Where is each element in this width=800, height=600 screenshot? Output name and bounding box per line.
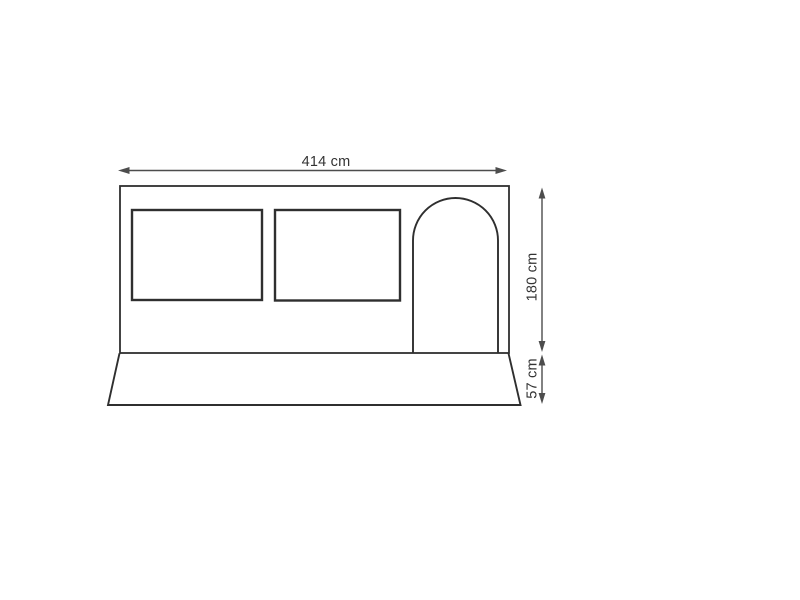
arched-door	[413, 198, 498, 353]
product-diagram-canvas: 414 cm 180 cm 57 cm	[0, 0, 800, 600]
arrow-left-icon	[118, 167, 130, 174]
skirt-dimension-label: 57 cm	[525, 358, 541, 399]
height-dimension-label: 180 cm	[525, 253, 541, 302]
window-right	[275, 210, 400, 301]
panel-shapes	[108, 186, 521, 405]
width-dimension: 414 cm	[118, 154, 507, 174]
arrow-up-icon	[539, 188, 546, 199]
width-dimension-label: 414 cm	[302, 154, 351, 170]
skirt-dimension: 57 cm	[525, 355, 546, 405]
ground-skirt	[108, 353, 521, 405]
dimension-annotations: 414 cm 180 cm 57 cm	[118, 154, 545, 404]
height-dimension: 180 cm	[525, 188, 546, 353]
arrow-right-icon	[496, 167, 508, 174]
arrow-down-icon	[539, 341, 546, 352]
window-left	[132, 210, 262, 300]
technical-drawing: 414 cm 180 cm 57 cm	[0, 0, 800, 600]
